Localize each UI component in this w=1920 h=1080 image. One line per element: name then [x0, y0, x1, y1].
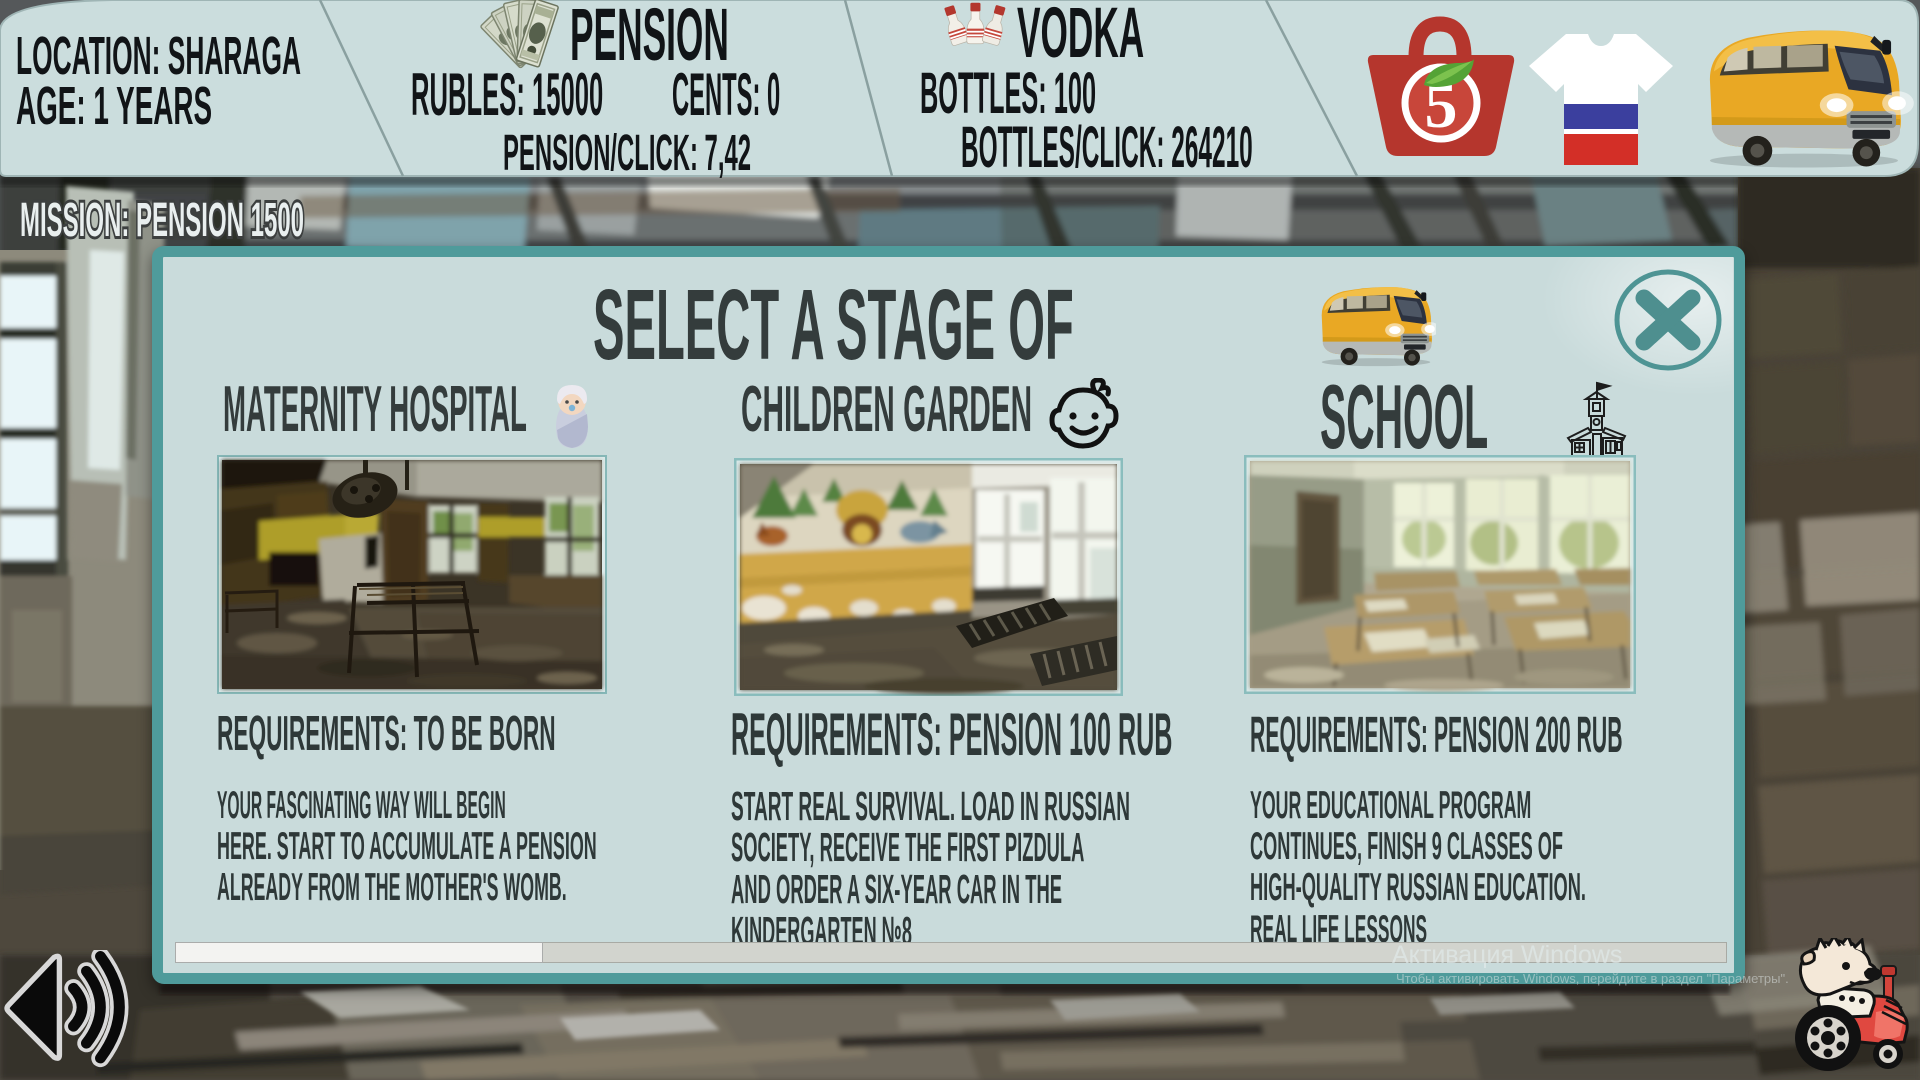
svg-text:MISSION: PENSION 1500: MISSION: PENSION 1500 — [20, 194, 304, 247]
